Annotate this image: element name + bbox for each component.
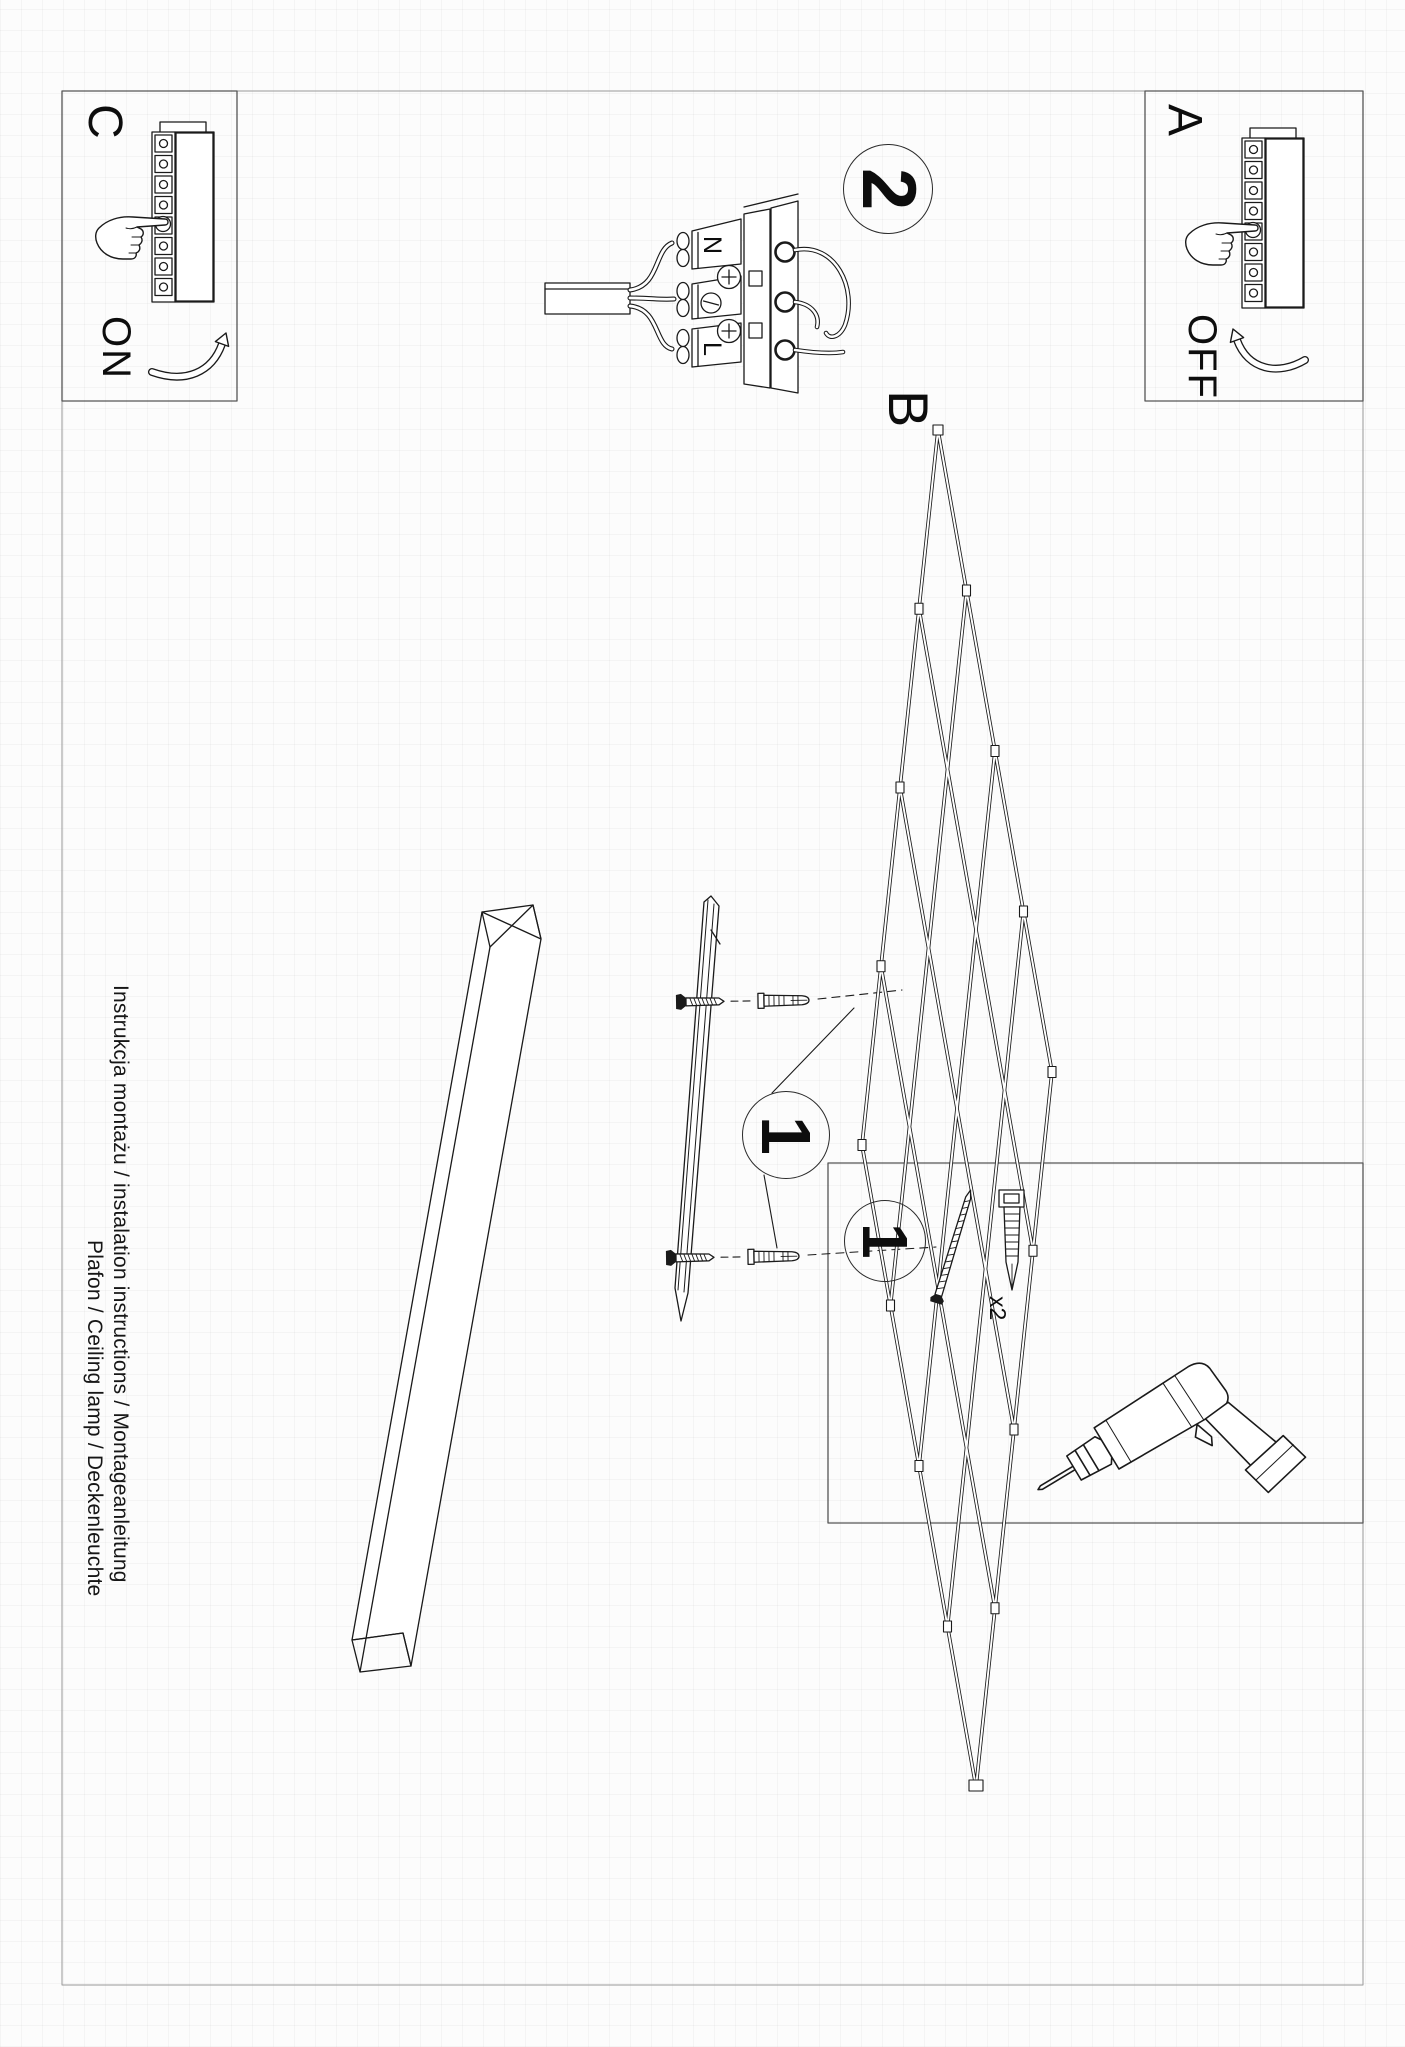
lamp-profile-bar — [352, 905, 541, 1672]
step-1-badge: 1 — [742, 1091, 830, 1179]
terminal-block-body — [744, 194, 798, 393]
footer-product-title: Plafon / Ceiling lamp / Deckenleuchte — [84, 1240, 105, 1596]
wire-ferrules — [677, 233, 689, 364]
terminal-block-illustration — [545, 194, 849, 393]
tools-step-number: 1 — [853, 1223, 917, 1259]
quantity-label: x2 — [986, 1296, 1009, 1320]
tools-screw — [929, 1188, 977, 1305]
footer-instructions-title: Instrukcja montażu / instalation instruc… — [110, 985, 131, 1583]
grid-frame — [858, 425, 1056, 1791]
step-1-number: 1 — [751, 1116, 821, 1155]
output-wires — [795, 249, 849, 353]
step-2-badge: 2 — [843, 144, 933, 234]
terminal-l-label: L — [699, 342, 724, 356]
tools-step-badge: 1 — [844, 1200, 926, 1282]
section-b-label: B — [880, 390, 936, 427]
on-arrow-icon — [152, 333, 229, 377]
off-arrow-icon — [1230, 329, 1305, 369]
terminal-n-label: N — [699, 236, 724, 254]
wires — [630, 243, 674, 349]
instruction-sheet: C ON A OFF B 2 1 1 N L x2 Instrukcja mon… — [0, 0, 1405, 2047]
page-frame — [62, 91, 1363, 1985]
section-a-label: A — [1160, 104, 1208, 137]
on-label: ON — [96, 316, 136, 380]
step-2-number: 2 — [850, 168, 926, 210]
drill-icon — [1024, 1339, 1312, 1593]
section-c-label: C — [80, 104, 128, 140]
power-cable — [545, 283, 630, 314]
off-label: OFF — [1182, 314, 1222, 400]
tools-wall-plug — [999, 1190, 1024, 1290]
line-art-canvas — [0, 0, 1405, 2047]
